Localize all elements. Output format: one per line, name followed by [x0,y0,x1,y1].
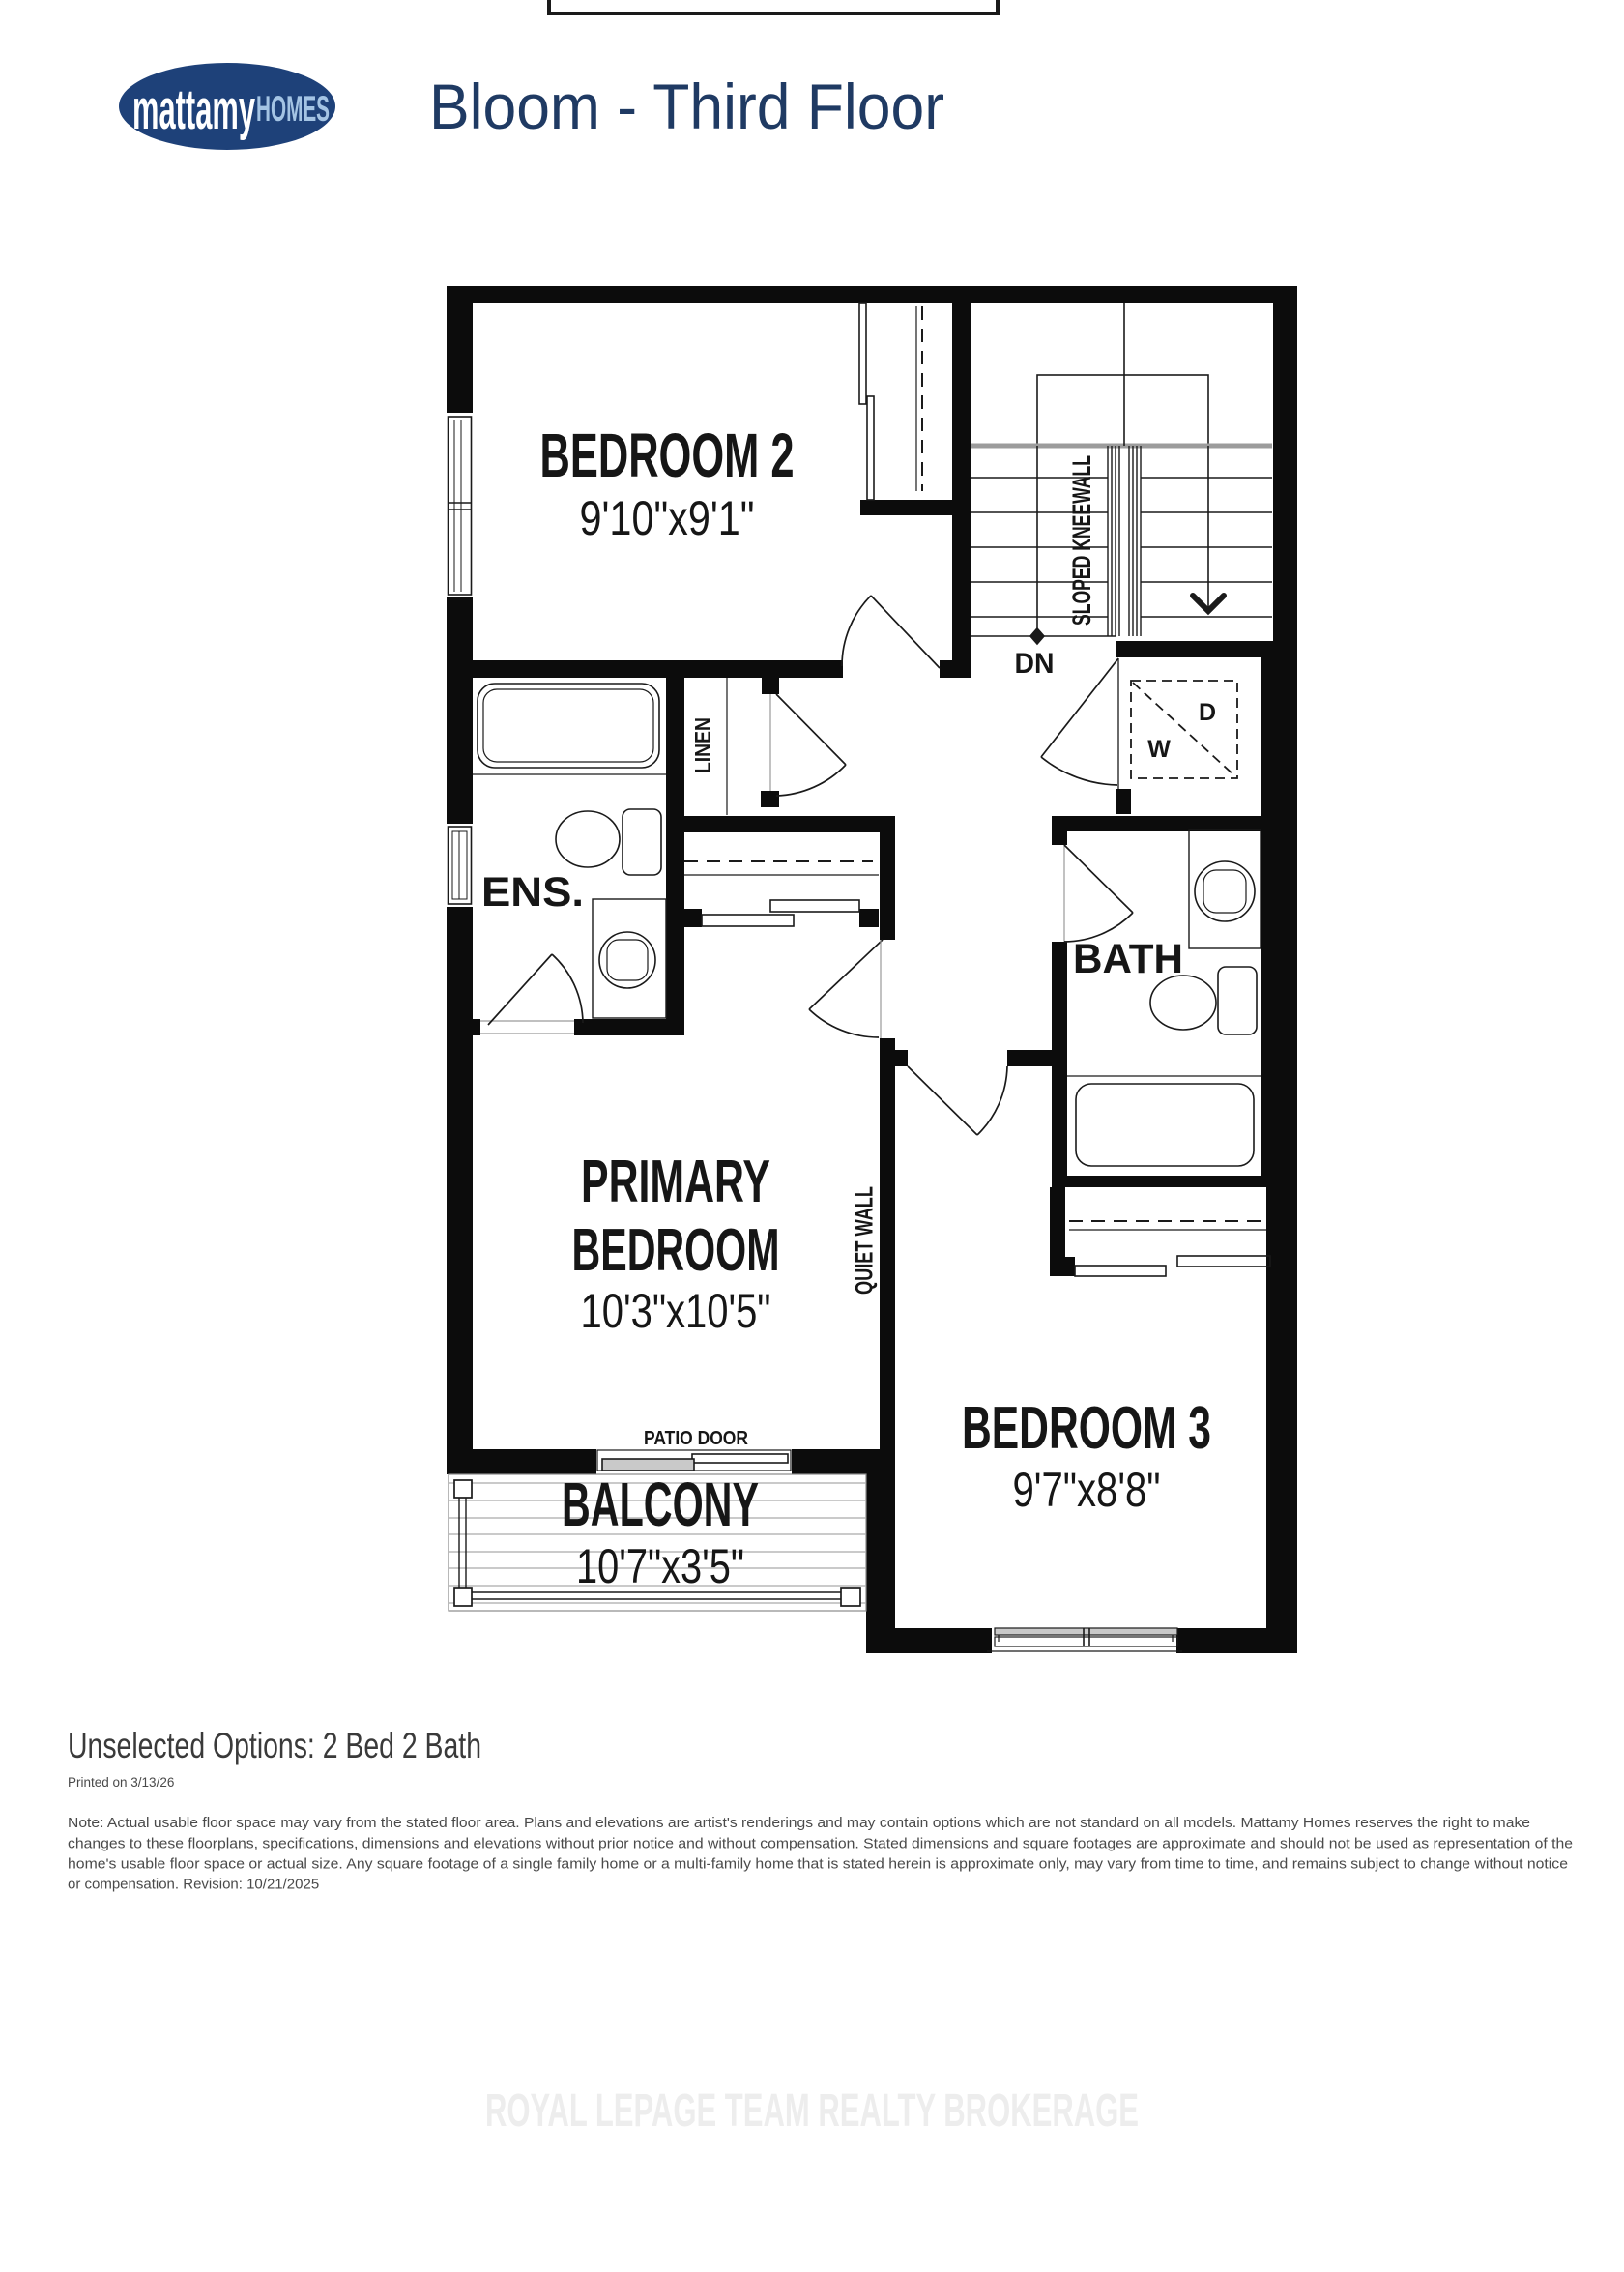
svg-text:Unselected Options: 2 Bed 2 Ba: Unselected Options: 2 Bed 2 Bath [68,1726,481,1765]
svg-text:LINEN: LINEN [690,717,715,773]
svg-text:BALCONY: BALCONY [562,1470,759,1539]
svg-text:DN: DN [1015,648,1055,680]
svg-text:mattamy: mattamy [132,78,255,141]
svg-text:Printed on 3/13/26: Printed on 3/13/26 [68,1775,174,1790]
svg-text:9'10"x9'1": 9'10"x9'1" [580,491,755,545]
svg-text:QUIET WALL: QUIET WALL [852,1186,879,1295]
svg-text:PATIO DOOR: PATIO DOOR [644,1428,748,1449]
svg-text:changes to these floorplans, s: changes to these floorplans, specificati… [68,1836,1573,1852]
svg-text:Bloom - Third Floor: Bloom - Third Floor [429,71,944,142]
svg-text:D: D [1199,699,1216,726]
svg-text:Note: Actual usable floor spac: Note: Actual usable floor space may vary… [68,1815,1530,1831]
svg-text:9'7"x8'8": 9'7"x8'8" [1013,1463,1161,1517]
svg-text:PRIMARY: PRIMARY [581,1149,770,1215]
svg-text:HOMES: HOMES [256,89,330,129]
svg-text:10'7"x3'5": 10'7"x3'5" [576,1539,744,1593]
svg-text:ROYAL LEPAGE TEAM REALTY BROKE: ROYAL LEPAGE TEAM REALTY BROKERAGE [485,2085,1139,2137]
svg-text:BEDROOM: BEDROOM [572,1217,780,1284]
svg-text:or compensation. Revision: 10/: or compensation. Revision: 10/21/2025 [68,1877,319,1893]
svg-text:BATH: BATH [1073,936,1183,982]
svg-text:10'3"x10'5": 10'3"x10'5" [581,1284,771,1338]
svg-text:BEDROOM 2: BEDROOM 2 [540,421,795,490]
svg-text:W: W [1147,736,1171,763]
svg-text:BEDROOM 3: BEDROOM 3 [962,1395,1211,1462]
svg-text:ENS.: ENS. [481,869,584,916]
svg-text:home's usable floor space or a: home's usable floor space or actual size… [68,1856,1568,1873]
svg-text:SLOPED KNEEWALL: SLOPED KNEEWALL [1067,455,1096,626]
